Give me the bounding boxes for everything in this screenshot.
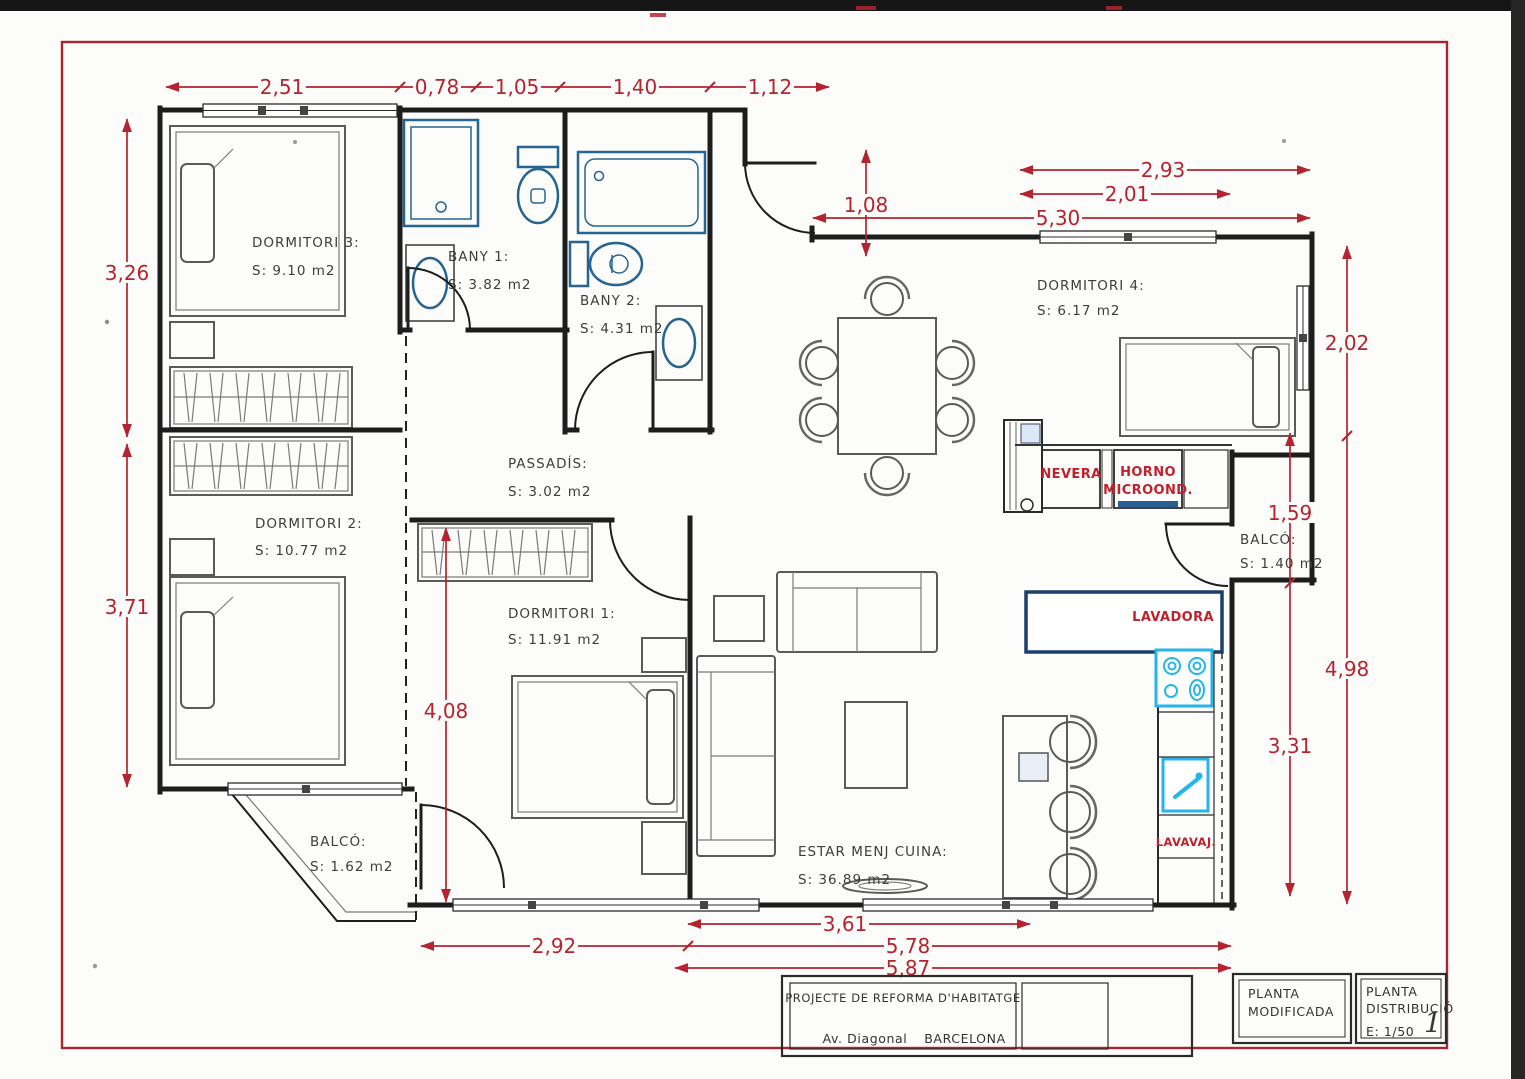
- dim-right-b-0: 1,59: [1268, 501, 1313, 525]
- dim-bottom-0: 3,61: [823, 912, 868, 936]
- scan-mark: [856, 6, 876, 10]
- scan-speck: [1282, 139, 1286, 143]
- dim-top-4: 1,12: [748, 75, 793, 99]
- label-bany1-area: S: 3.82 m2: [448, 277, 532, 293]
- window-d2-bottom: [228, 783, 402, 795]
- window-bottom-estar: [863, 899, 1153, 911]
- oven-front: [1118, 501, 1178, 507]
- dim-right-top-2: 5,30: [1036, 206, 1081, 230]
- label-d2-name: DORMITORI 2:: [255, 516, 363, 532]
- dim-bottom-2: 5,78: [886, 934, 931, 958]
- scan-speck: [93, 964, 97, 968]
- label-balco-right-area: S: 1.40 m2: [1240, 556, 1324, 572]
- dim-left-1: 3,71: [105, 595, 150, 619]
- window-d4-right: [1297, 286, 1309, 390]
- project-city: BARCELONA: [924, 1031, 1005, 1046]
- label-d1-area: S: 11.91 m2: [508, 632, 601, 648]
- scan-mark: [1106, 6, 1122, 10]
- label-microond: MICROOND.: [1103, 483, 1193, 498]
- scan-mark: [650, 13, 666, 17]
- project-street: Av. Diagonal: [823, 1031, 908, 1046]
- scan-speck: [105, 320, 109, 324]
- sheet-name-line1: PLANTA: [1366, 984, 1418, 999]
- label-lavadora: LAVADORA: [1132, 610, 1214, 625]
- dim-top-1: 0,78: [415, 75, 460, 99]
- dim-d1-height: 4,08: [424, 699, 469, 723]
- label-bany2-area: S: 4.31 m2: [580, 321, 664, 337]
- label-d3-area: S: 9.10 m2: [252, 263, 336, 279]
- label-estar-area: S: 36.89 m2: [798, 872, 891, 888]
- dim-top-2: 1,05: [495, 75, 540, 99]
- label-passadis-name: PASSADÍS:: [508, 455, 588, 472]
- dim-right-top-0: 2,93: [1141, 158, 1186, 182]
- scan-speck: [293, 140, 297, 144]
- label-bany1-name: BANY 1:: [448, 249, 509, 265]
- label-estar-name: ESTAR MENJ CUINA:: [798, 844, 948, 860]
- label-d3-name: DORMITORI 3:: [252, 235, 360, 251]
- kitchen-sink: [1163, 759, 1208, 811]
- scan-edge-top: [0, 0, 1525, 11]
- dim-right-a-1: 4,98: [1325, 657, 1370, 681]
- sheet-scale: E: 1/50: [1366, 1024, 1414, 1039]
- label-bany2-name: BANY 2:: [580, 293, 641, 309]
- sheet-type-line1: PLANTA: [1248, 986, 1300, 1001]
- dim-bottom-1: 2,92: [532, 934, 577, 958]
- dim-right-b-1: 3,31: [1268, 734, 1313, 758]
- window-d3-top: [203, 104, 397, 117]
- label-balco-left-name: BALCÓ:: [310, 832, 366, 850]
- dim-entry: 1,08: [844, 193, 889, 217]
- dim-right-top-1: 2,01: [1105, 182, 1150, 206]
- label-balco-left-area: S: 1.62 m2: [310, 859, 394, 875]
- label-d2-area: S: 10.77 m2: [255, 543, 348, 559]
- floor-plan-svg: 2,51 0,78 1,05 1,40 1,12 3,26 3,71 4,08 …: [0, 0, 1525, 1079]
- label-d1-name: DORMITORI 1:: [508, 606, 616, 622]
- dim-top-0: 2,51: [260, 75, 305, 99]
- bar-accessory: [1019, 753, 1048, 781]
- label-nevera: NEVERA: [1040, 467, 1101, 482]
- label-lavavaj: LAVAVAJ.: [1156, 835, 1217, 849]
- label-horno: HORNO: [1120, 465, 1176, 480]
- label-passadis-area: S: 3.02 m2: [508, 484, 592, 500]
- dim-left-0: 3,26: [105, 261, 150, 285]
- label-d4-area: S: 6.17 m2: [1037, 303, 1121, 319]
- window-bottom-d1: [453, 899, 759, 911]
- scanned-floor-plan-page: 2,51 0,78 1,05 1,40 1,12 3,26 3,71 4,08 …: [0, 0, 1525, 1079]
- window-d4-top: [1040, 231, 1216, 243]
- scan-edge-right: [1511, 0, 1525, 1079]
- dim-right-a-0: 2,02: [1325, 331, 1370, 355]
- project-title: PROJECTE DE REFORMA D'HABITATGE: [785, 991, 1020, 1005]
- label-d4-name: DORMITORI 4:: [1037, 278, 1145, 294]
- stove: [1156, 650, 1212, 706]
- dim-top-3: 1,40: [613, 75, 658, 99]
- sheet-type-line2: MODIFICADA: [1248, 1004, 1334, 1019]
- label-balco-right-name: BALCÓ:: [1240, 530, 1296, 548]
- sheet-number: 1: [1424, 1006, 1442, 1039]
